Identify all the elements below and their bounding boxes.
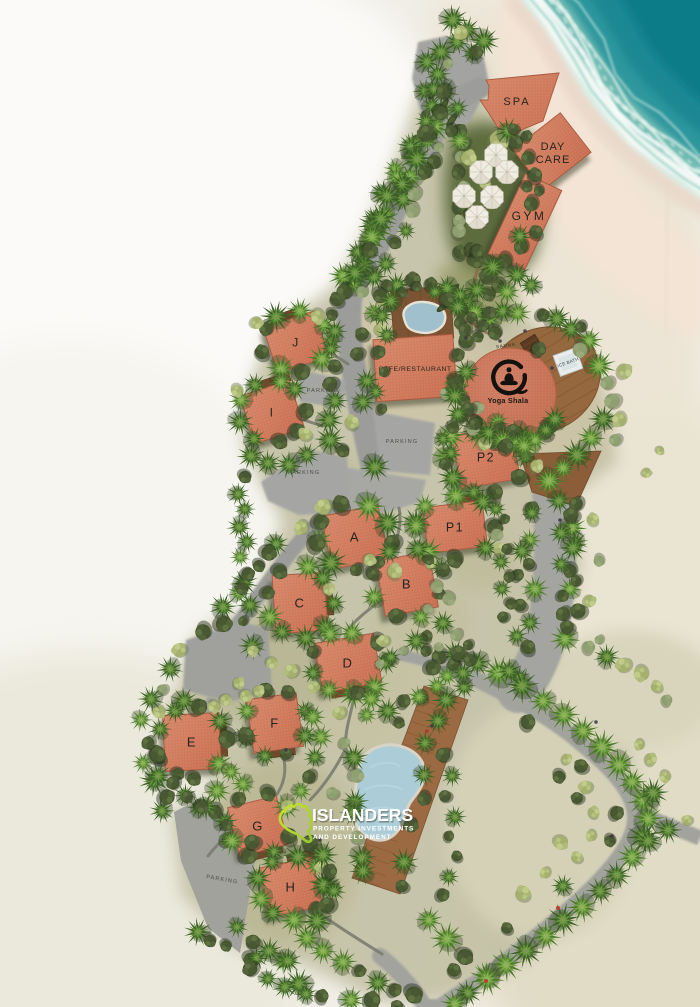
svg-text:F: F [270,716,279,731]
svg-text:B: B [402,577,412,592]
svg-text:PARKING: PARKING [386,439,418,445]
svg-text:PROPERTY INVESTMENTS: PROPERTY INVESTMENTS [313,826,414,833]
svg-text:H: H [286,880,297,895]
svg-text:Yoga Shala: Yoga Shala [488,396,530,405]
svg-text:ISLANDERS: ISLANDERS [312,805,413,825]
svg-text:A: A [350,530,360,545]
svg-text:E: E [187,735,197,750]
svg-text:J: J [292,335,300,349]
svg-text:SPA: SPA [503,96,530,108]
svg-text:DAY: DAY [541,141,566,153]
svg-text:I: I [270,405,275,419]
svg-text:CARE: CARE [536,154,571,166]
svg-text:AND DEVELOPMENT: AND DEVELOPMENT [313,834,392,841]
svg-text:P1: P1 [446,521,464,535]
svg-text:P2: P2 [477,451,495,465]
svg-text:G: G [252,819,264,834]
svg-text:C: C [295,596,306,611]
svg-text:D: D [343,656,354,671]
